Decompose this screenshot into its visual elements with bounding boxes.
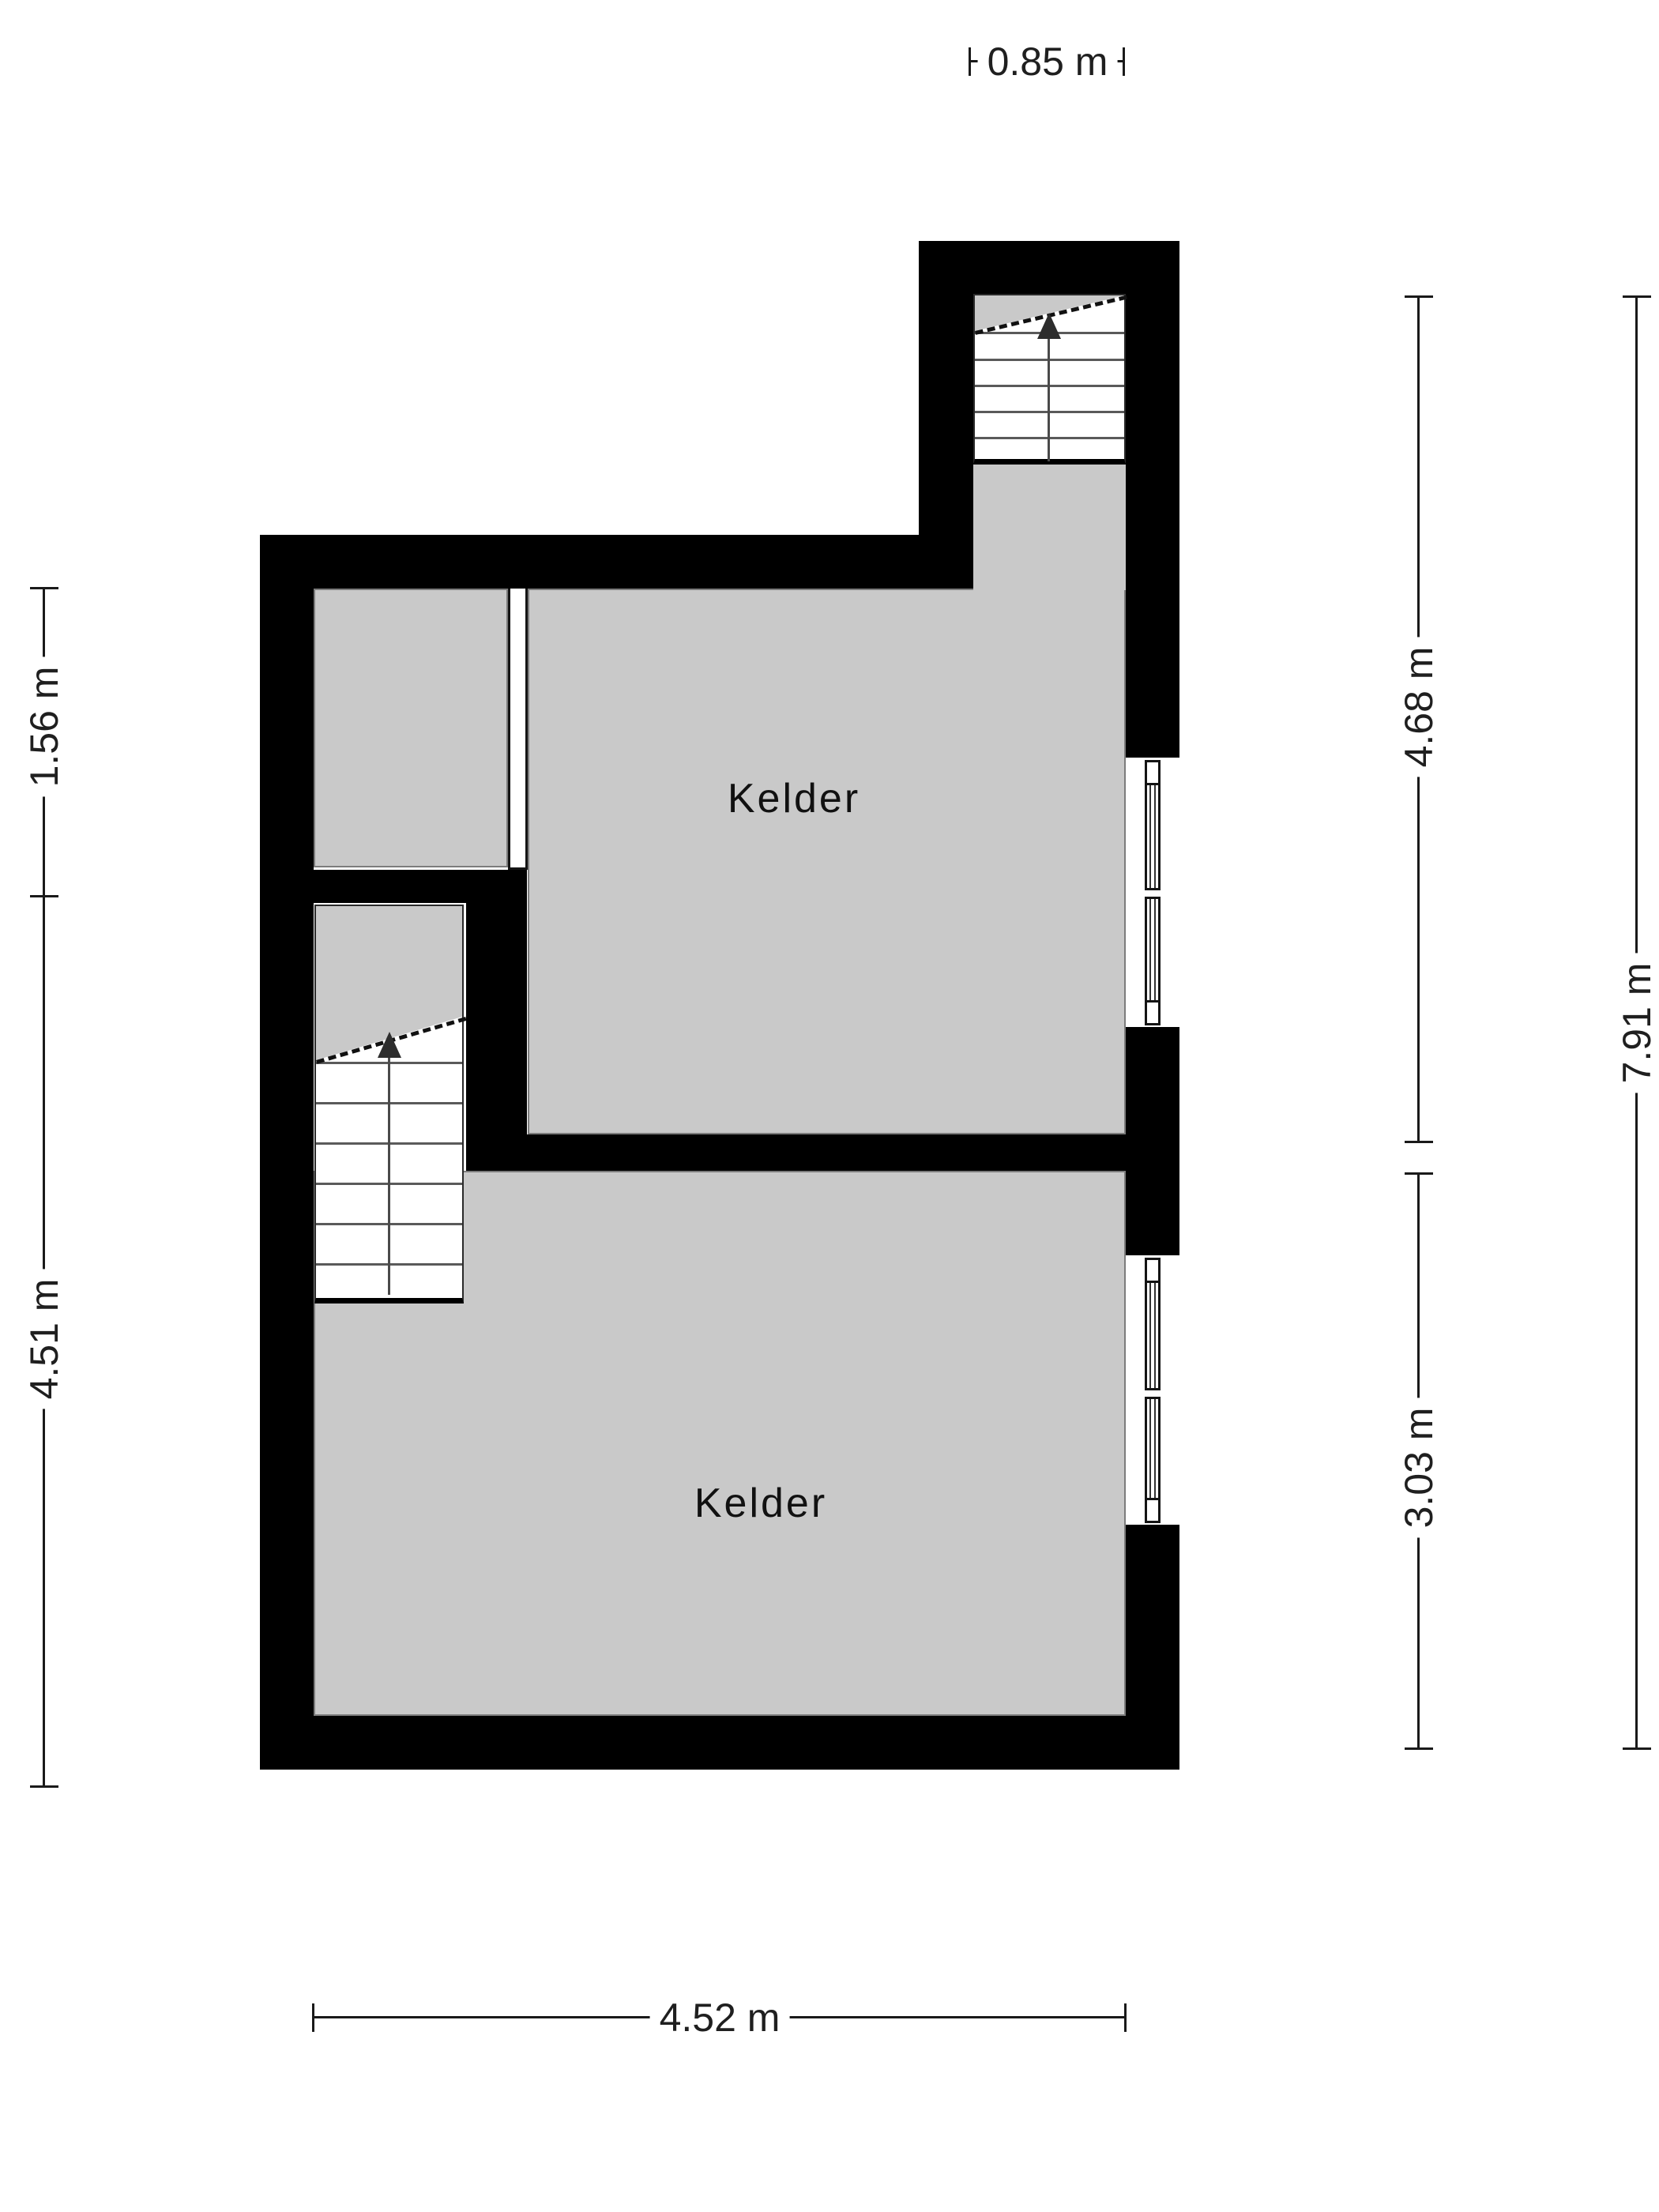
up-arrow-icon [378, 1032, 401, 1058]
window-upper-frame [1145, 760, 1161, 1025]
dimension-top-label: 0.85 m [978, 36, 1118, 88]
dimension-tick [1124, 2003, 1127, 2032]
room-left-strip [314, 589, 508, 867]
upper-staircase [973, 294, 1126, 465]
stair-direction-line [1048, 339, 1050, 461]
wall-left-strip-bottom [314, 870, 527, 903]
wall-right-middle [1126, 1027, 1179, 1255]
dimension-right-upper-label: 4.68 m [1393, 638, 1445, 777]
window-sill-cap [1145, 760, 1161, 785]
dimension-right-lower-label: 3.03 m [1393, 1398, 1445, 1538]
wall-top-main [260, 535, 973, 589]
dimension-tick [1405, 1747, 1433, 1750]
dimension-bottom-label: 4.52 m [650, 1992, 790, 2044]
stair-passage [973, 465, 1126, 590]
window-sill-cap [1145, 1000, 1161, 1025]
window-sill-cap [1145, 1258, 1161, 1283]
stair-direction-line [388, 1058, 390, 1295]
dimension-tick [1623, 1747, 1651, 1750]
dimension-left-upper-label: 1.56 m [18, 657, 70, 797]
room-kelder-upper [528, 589, 1126, 1134]
wall-opening-partition [508, 589, 528, 870]
wall-interior-horizontal [527, 1134, 1126, 1171]
dimension-left-lower-label: 4.51 m [18, 1270, 70, 1409]
wall-left [260, 535, 314, 1770]
wall-right-lower [1126, 1525, 1179, 1770]
room-label-kelder-upper: Kelder [728, 775, 860, 822]
lower-staircase [314, 905, 464, 1303]
up-arrow-icon [1037, 313, 1061, 339]
dimension-tick [1405, 1141, 1433, 1143]
dimension-tick [312, 2003, 314, 2032]
window-lower-frame [1145, 1258, 1161, 1523]
dimension-right-total-label: 7.91 m [1611, 954, 1659, 1093]
room-label-kelder-lower: Kelder [694, 1480, 827, 1527]
dimension-tick [30, 1785, 58, 1788]
window-sill-cap [1145, 1498, 1161, 1523]
wall-right-upper [1126, 241, 1179, 758]
floor-plan: Kelder Kelder 0.85 m 1.56 m 4.51 m 4.68 … [0, 0, 1659, 2212]
window-divider [1145, 888, 1161, 899]
window-divider [1145, 1388, 1161, 1399]
dimension-tick [969, 47, 971, 76]
wall-bottom [260, 1716, 1179, 1770]
dimension-tick [1123, 47, 1125, 76]
